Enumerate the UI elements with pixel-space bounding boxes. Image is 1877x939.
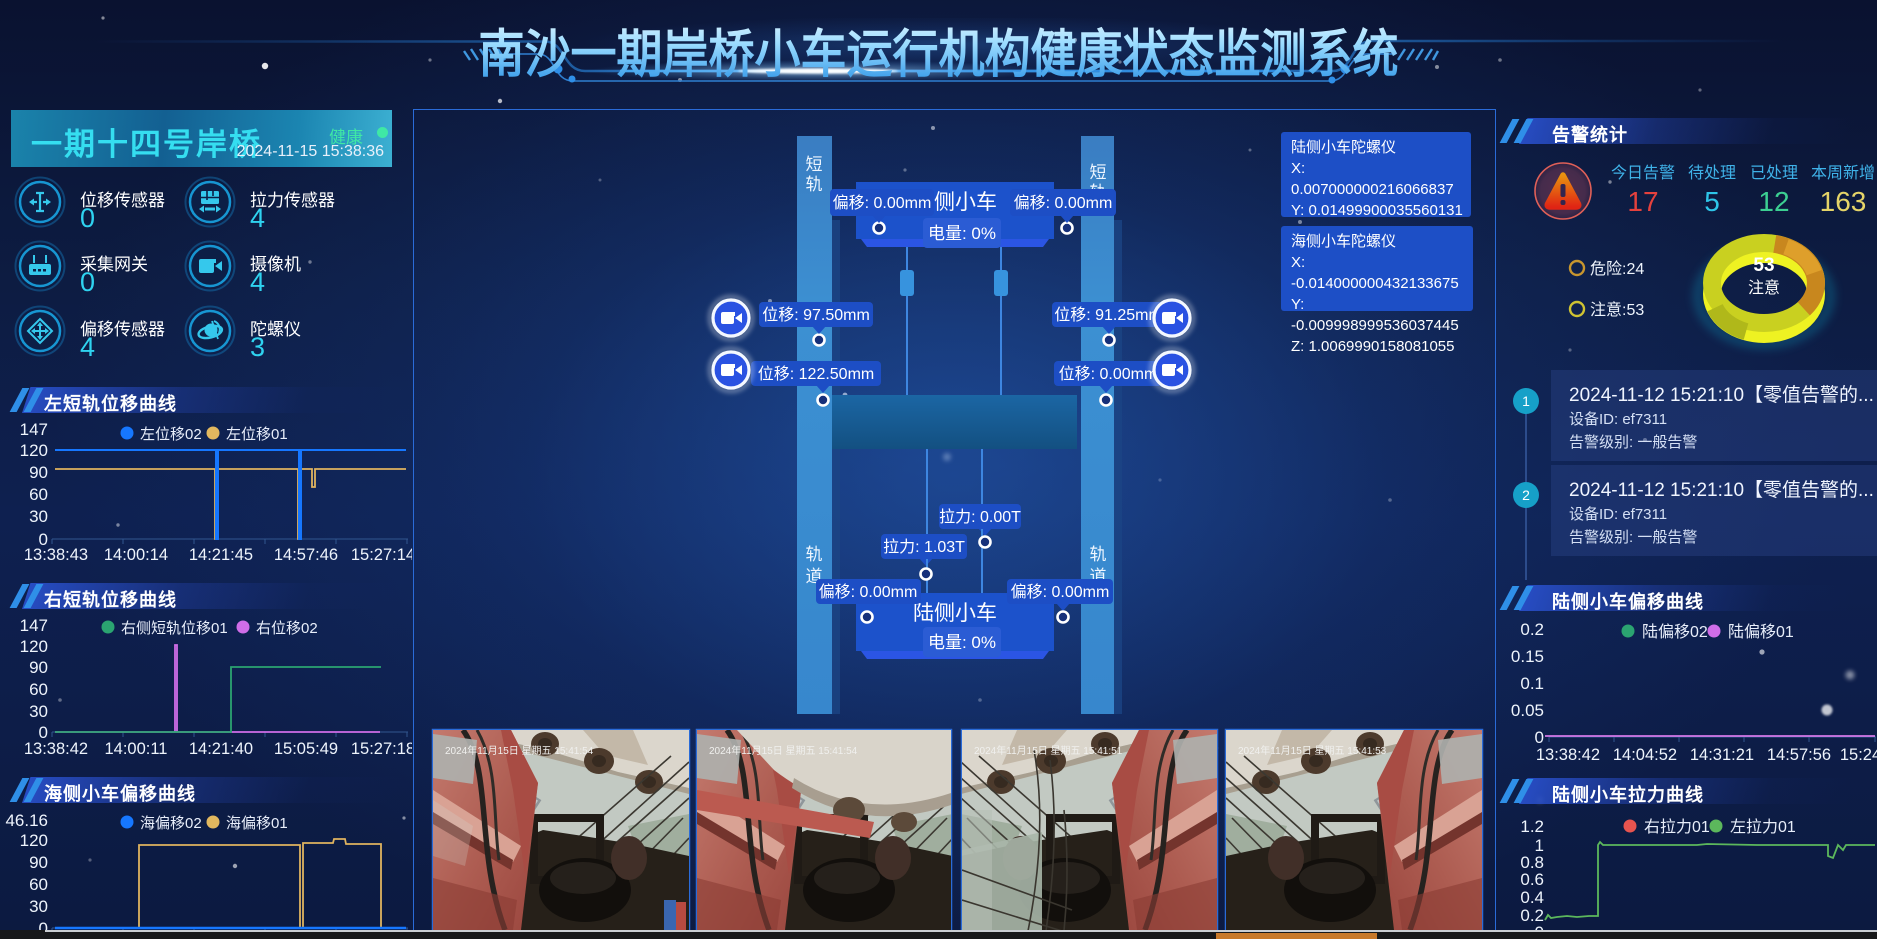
svg-text:2024年11月15日 星期五 15:41:54: 2024年11月15日 星期五 15:41:54 — [445, 744, 594, 757]
svg-text:163: 163 — [1820, 186, 1867, 217]
svg-text:5: 5 — [1704, 186, 1720, 217]
svg-text:海偏移02: 海偏移02 — [140, 815, 202, 832]
svg-text:注意: 注意 — [1748, 278, 1780, 297]
svg-text:右侧短轨位移01: 右侧短轨位移01 — [121, 620, 228, 637]
svg-text:120: 120 — [20, 831, 48, 850]
svg-text:0.4: 0.4 — [1520, 888, 1544, 907]
svg-text:13:38:42: 13:38:42 — [1536, 746, 1600, 764]
svg-text:2024年11月15日 星期五 15:41:54: 2024年11月15日 星期五 15:41:54 — [709, 744, 858, 757]
svg-text:90: 90 — [29, 658, 48, 677]
svg-text:30: 30 — [29, 897, 48, 916]
svg-text:60: 60 — [29, 485, 48, 504]
svg-text:1.2: 1.2 — [1520, 817, 1544, 836]
svg-text:30: 30 — [29, 702, 48, 721]
svg-text:0.05: 0.05 — [1511, 701, 1544, 720]
svg-text:0.15: 0.15 — [1511, 647, 1544, 666]
svg-text:120: 120 — [20, 637, 48, 656]
svg-text:右拉力01: 右拉力01 — [1644, 818, 1710, 836]
svg-text:14:57:46: 14:57:46 — [274, 546, 338, 564]
svg-text:14:00:14: 14:00:14 — [104, 546, 168, 564]
svg-text:90: 90 — [29, 463, 48, 482]
svg-text:15:27:14: 15:27:14 — [351, 546, 412, 564]
svg-text:46.16: 46.16 — [5, 811, 48, 830]
svg-text:右位移02: 右位移02 — [256, 620, 318, 637]
svg-text:15:05:49: 15:05:49 — [274, 740, 338, 758]
svg-text:左位移02: 左位移02 — [140, 426, 202, 443]
svg-text:14:04:52: 14:04:52 — [1613, 746, 1677, 764]
svg-text:陆偏移01: 陆偏移01 — [1728, 623, 1794, 641]
svg-text:15:24:31: 15:24:31 — [1840, 746, 1877, 764]
svg-text:30: 30 — [29, 507, 48, 526]
svg-text:14:21:40: 14:21:40 — [189, 740, 253, 758]
svg-text:12: 12 — [1758, 186, 1789, 217]
svg-text:60: 60 — [29, 680, 48, 699]
svg-text:14:57:56: 14:57:56 — [1767, 746, 1831, 764]
svg-text:14:00:11: 14:00:11 — [104, 740, 167, 758]
svg-text:左拉力01: 左拉力01 — [1730, 818, 1796, 836]
svg-text:120: 120 — [20, 441, 48, 460]
svg-text:待处理: 待处理 — [1688, 164, 1736, 182]
svg-text:13:38:42: 13:38:42 — [24, 740, 88, 758]
svg-text:147: 147 — [20, 616, 48, 635]
svg-text:14:21:45: 14:21:45 — [189, 546, 253, 564]
svg-text:90: 90 — [29, 853, 48, 872]
svg-text:2024年11月15日 星期五 15:41:51: 2024年11月15日 星期五 15:41:51 — [974, 744, 1123, 757]
svg-text:今日告警: 今日告警 — [1611, 164, 1675, 182]
svg-text:147: 147 — [20, 420, 48, 439]
svg-text:左位移01: 左位移01 — [226, 426, 288, 443]
svg-text:0.2: 0.2 — [1520, 620, 1544, 639]
svg-text:本周新增: 本周新增 — [1811, 164, 1875, 182]
svg-text:0.1: 0.1 — [1520, 674, 1544, 693]
svg-text:53: 53 — [1753, 255, 1774, 276]
svg-text:2024年11月15日 星期五 15:41:53: 2024年11月15日 星期五 15:41:53 — [1238, 744, 1387, 757]
svg-text:17: 17 — [1627, 186, 1658, 217]
svg-text:14:31:21: 14:31:21 — [1690, 746, 1754, 764]
svg-text:海偏移01: 海偏移01 — [226, 815, 288, 832]
svg-text:已处理: 已处理 — [1750, 164, 1798, 182]
svg-text:0.6: 0.6 — [1520, 870, 1544, 889]
svg-text:60: 60 — [29, 875, 48, 894]
svg-text:13:38:43: 13:38:43 — [24, 546, 88, 564]
svg-text:15:27:18: 15:27:18 — [351, 740, 412, 758]
svg-text:陆偏移02: 陆偏移02 — [1642, 623, 1708, 641]
svg-text:0: 0 — [1535, 728, 1544, 747]
